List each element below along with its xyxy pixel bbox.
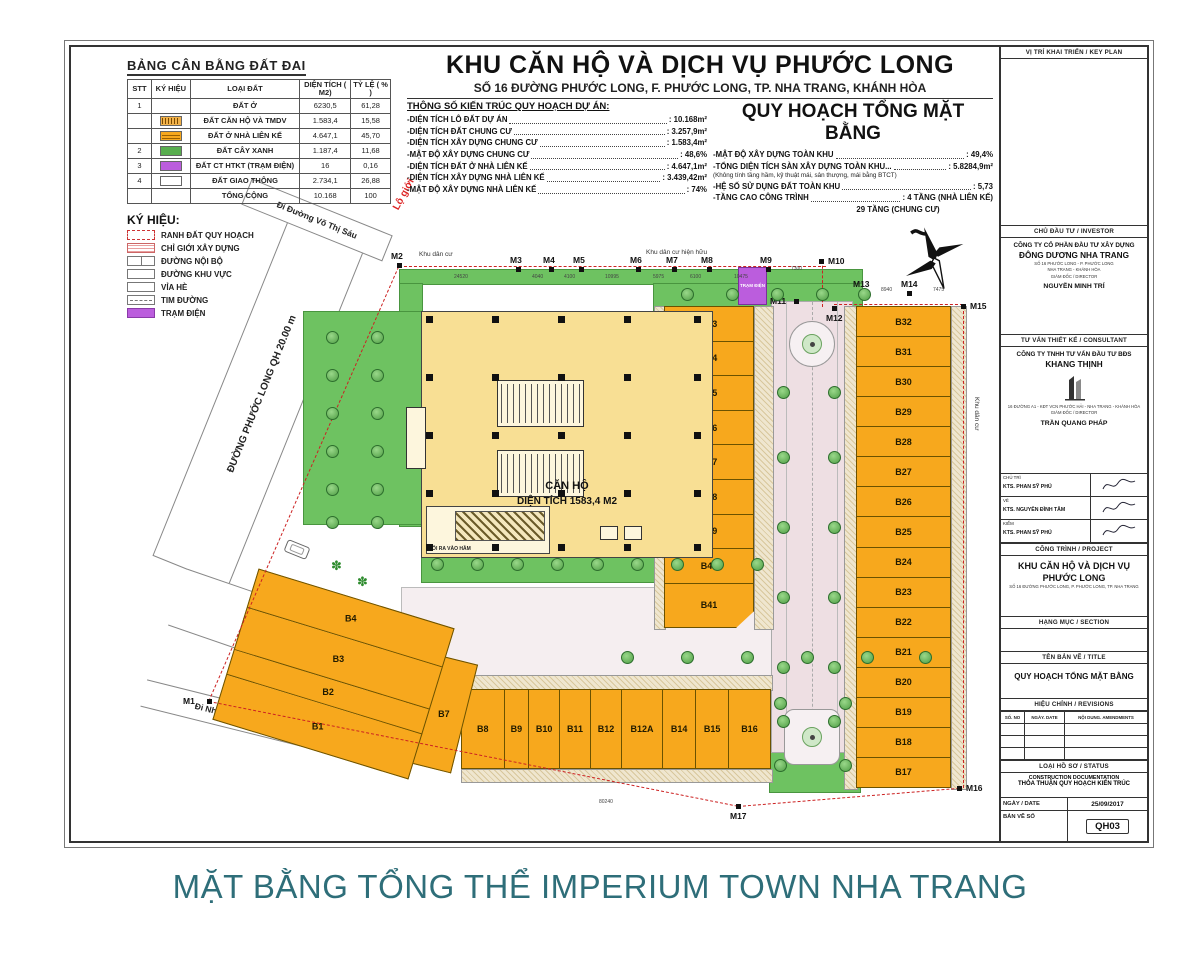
signature-name: KTS. PHAN SỸ PHÚ [1003,530,1088,536]
marker-label-m4: M4 [543,255,555,265]
marker-label-m2: M2 [391,251,403,261]
signature-icon [1099,476,1139,494]
spec-value: : 74% [687,184,707,196]
lot-b22: B22 [856,608,951,638]
column-dot [624,374,631,381]
legend-swatch-khuvuc [127,269,155,279]
boundary-right [963,306,964,788]
legend-item: CHỈ GIỚI XÂY DỰNG [127,243,307,253]
tree-icon [511,558,524,571]
legend-swatch-chigioi [127,243,155,253]
legend-item: ĐƯỜNG NỘI BỘ [127,256,307,266]
tree-icon [774,697,787,710]
dim-top: 5975 [653,274,664,280]
lot-label: B12 [598,724,615,734]
cell-loai: ĐẤT CÂY XANH [190,143,300,158]
tree-icon [371,369,384,382]
cell-tyle: 45,70 [351,128,391,143]
signature-cell [1091,497,1147,519]
marker-dot-m7 [672,267,677,272]
signature-row: KIỂMKTS. PHAN SỸ PHÚ [1001,520,1147,543]
cell-loai: ĐẤT Ở NHÀ LIÊN KẾ [190,128,300,143]
table-header: STT [128,80,152,99]
lot-b24: B24 [856,548,951,578]
column-dot [492,490,499,497]
tree-icon [371,407,384,420]
cell-dientich: 4.647,1 [300,128,351,143]
column-dot [492,544,499,551]
spec-label: -TỔNG DIỆN TÍCH SÀN XÂY DỰNG TOÀN KHU... [713,161,892,173]
rev-header-cell: NGÀY. DATE [1025,711,1065,723]
signature-icon [1099,522,1139,540]
cell-stt [128,113,152,128]
lot-label: B27 [895,467,912,477]
marker-label-m1: M1 [183,696,195,706]
cell-tyle: 61,28 [351,98,391,113]
spec-value: : 4.647,1m² [667,161,707,173]
column-dot [492,432,499,439]
lot-label: B18 [895,737,912,747]
tree-icon [371,516,384,529]
lot-label: B15 [704,724,721,734]
consultant-block: CÔNG TY TNHH TƯ VẤN ĐẦU TƯ BĐS KHANG THỊ… [1001,347,1147,473]
spec-leader [894,169,947,170]
rev-empty-cell [1065,735,1147,747]
tree-icon [621,651,634,664]
dim-top: 4040 [532,274,543,280]
signature-row: VẼKTS. NGUYỄN ĐÌNH TÂM [1001,497,1147,520]
specs-title: THÔNG SỐ KIẾN TRÚC QUY HOẠCH DỰ ÁN: [407,101,707,112]
table-row: 2ĐẤT CÂY XANH1.187,411,68 [128,143,391,158]
column-dot [694,432,701,439]
signature-table: CHỦ TRÌKTS. PHAN SỸ PHÚVẼKTS. NGUYỄN ĐÌN… [1001,473,1147,543]
spec-label: -MẬT ĐỘ XÂY DỰNG NHÀ LIÊN KẾ [407,184,536,196]
lot-b23: B23 [856,578,951,608]
spec-label: -MẬT ĐỘ XÂY DỰNG TOÀN KHU [713,149,834,161]
marker-dot-m17 [736,804,741,809]
tree-icon [371,483,384,496]
signature-row: CHỦ TRÌKTS. PHAN SỸ PHÚ [1001,474,1147,497]
legend-item: TRẠM ĐIỆN [127,308,307,318]
divider [407,98,993,99]
dim-extra: 8940 [881,287,892,293]
green-left-park [303,311,423,525]
keyplan-box [1001,59,1147,225]
lot-label: B29 [895,407,912,417]
cell-swatch [152,98,191,113]
rev-header-cell: SỐ. NO [1001,711,1025,723]
lot-label: B7 [438,709,450,719]
legend-label: TRẠM ĐIỆN [161,309,205,318]
swatch-purple [160,161,182,171]
cell-swatch [152,188,191,203]
lot-b19: B19 [856,698,951,728]
lot-b28: B28 [856,427,951,457]
cell-swatch [152,113,191,128]
spec-cont: 29 TẦNG (CHUNG CƯ) [713,204,993,216]
spec-leader [514,134,665,135]
lot-label: B30 [895,377,912,387]
rev-empty-cell [1001,735,1025,747]
specs-right: QUY HOẠCH TỔNG MẶT BẰNG -MẬT ĐỘ XÂY DỰNG… [707,101,993,216]
spec-leader [531,158,678,159]
lot-b12: B12 [591,689,623,769]
investor-name: ĐÔNG DƯƠNG NHA TRANG [1004,251,1144,262]
signature-cell [1091,474,1147,496]
building-stair-west [406,407,426,469]
marker-dot-m3 [516,267,521,272]
signature-role-cell: VẼKTS. NGUYỄN ĐÌNH TÂM [1001,497,1091,519]
lot-b27: B27 [856,457,951,487]
lot-label: B2 [322,687,334,697]
apartment-building: CĂN HỘ DIỆN TÍCH 1583,4 M2 LỐI RA VÀO HẦ… [421,311,713,558]
median-line [812,302,813,752]
tree-icon [326,483,339,496]
lot-column-right: B32B31B30B29B28B27B26B25B24B23B22B21B20B… [856,306,951,788]
legend-item: ĐƯỜNG KHU VỰC [127,269,307,279]
consultant-logo-icon [1060,373,1088,401]
lot-b10: B10 [529,689,560,769]
number-value: QH03 [1068,811,1147,841]
lot-label: B22 [895,617,912,627]
column-dot [694,544,701,551]
lot-label: B25 [895,527,912,537]
lot-b18: B18 [856,728,951,758]
building-entry-2 [624,526,642,540]
column-dot [426,432,433,439]
star-tree-icon: ✽ [357,575,368,588]
building-name: CĂN HỘ [422,480,712,492]
sidewalk-right-right [951,306,967,790]
land-balance-table: BẢNG CÂN BẰNG ĐẤT ĐAI STTKÝ HIỆULOẠI ĐẤT… [127,57,393,204]
tree-icon [711,558,724,571]
marker-label-m7: M7 [666,255,678,265]
lot-label: B11 [567,724,583,734]
spec-label: -HỆ SỐ SỬ DỤNG ĐẤT TOÀN KHU [713,181,840,193]
status-block: CONSTRUCTION DOCUMENTATION THỎA THUẬN QU… [1001,773,1147,797]
investor-block: CÔNG TY CỔ PHẦN ĐẦU TƯ XÂY DỰNG ĐÔNG DƯƠ… [1001,238,1147,334]
lot-label: B4 [345,613,357,623]
spec-leader [547,181,661,182]
tree-icon [858,288,871,301]
legend-item: RANH ĐẤT QUY HOẠCH [127,230,307,240]
date-value: 25/09/2017 [1068,798,1147,810]
tree-icon [326,369,339,382]
lot-b20: B20 [856,668,951,698]
swatch-road [160,176,182,186]
table-row: 1ĐẤT Ở6230,561,28 [128,98,391,113]
drawing-title: QUY HOẠCH TỔNG MẶT BẰNG [1004,672,1144,681]
dim-top: 6100 [690,274,701,280]
rev-header-cell: NỘI DUNG. AMENDMENTS [1065,711,1147,723]
khu-dan-cu-right-label: Khu dân cư [973,397,980,431]
basement-ramp: LỐI RA VÀO HẦM [426,506,550,554]
signature-role: KIỂM [1003,521,1088,526]
tree-icon [681,288,694,301]
dim-top: 10475 [734,274,748,280]
revisions-table: SỐ. NONGÀY. DATENỘI DUNG. AMENDMENTS [1001,711,1147,760]
tree-icon [777,451,790,464]
table-header: TỶ LỆ ( % ) [351,80,391,99]
lot-b29: B29 [856,397,951,427]
spec-value: : 1.583,4m² [667,137,707,149]
spec-line: -MẬT ĐỘ XÂY DỰNG NHÀ LIÊN KẾ: 74% [407,184,707,196]
spec-label: -DIỆN TÍCH ĐẤT CHUNG CƯ [407,126,512,138]
tree-icon [371,445,384,458]
marker-dot-m2 [397,263,402,268]
drawing-title-box: QUY HOẠCH TỔNG MẶT BẰNG [1001,664,1147,698]
ramp-hatch [455,511,545,541]
plan-title: QUY HOẠCH TỔNG MẶT BẰNG [713,101,993,145]
khu-dan-cu-label: Khu dân cư [419,251,453,258]
legend: KÝ HIỆU: RANH ĐẤT QUY HOẠCHCHỈ GIỚI XÂY … [127,213,307,321]
rev-empty-cell [1001,723,1025,735]
swatch-apartment [160,116,182,126]
marker-label-m15: M15 [970,301,987,311]
star-tree-icon: ✽ [331,559,342,572]
drawing-title-header: TÊN BẢN VẼ / TITLE [1001,651,1147,664]
legend-label: CHỈ GIỚI XÂY DỰNG [161,244,240,253]
rev-empty-cell [1065,747,1147,759]
tree-icon [771,288,784,301]
table-header: KÝ HIỆU [152,80,191,99]
lot-b41: B41 [664,584,754,628]
marker-label-m14: M14 [901,279,918,289]
tree-icon [431,558,444,571]
lot-b12a: B12A [622,689,663,769]
cell-loai: ĐẤT CĂN HỘ VÀ TMDV [190,113,300,128]
project-header: CÔNG TRÌNH / PROJECT [1001,543,1147,556]
lot-label: B10 [536,724,553,734]
consultant-line1: CÔNG TY TNHH TƯ VẤN ĐẦU TƯ BĐS [1004,351,1144,360]
dim-top: 24520 [454,274,468,280]
spec-leader [509,123,666,124]
sheet-header: KHU CĂN HỘ VÀ DỊCH VỤ PHƯỚC LONG SỐ 16 Đ… [407,51,993,216]
marker-dot-m8 [707,267,712,272]
column-dot [694,374,701,381]
cell-swatch [152,128,191,143]
legend-swatch-timduong [127,295,155,305]
marker-label-m6: M6 [630,255,642,265]
tree-icon [777,715,790,728]
cell-dientich: 10.168 [300,188,351,203]
sidewalk-mid-right [754,306,774,630]
marker-label-m12: M12 [826,313,843,323]
tree-icon [816,288,829,301]
legend-label: ĐƯỜNG NỘI BỘ [161,257,223,266]
cell-dientich: 6230,5 [300,98,351,113]
boundary-top [399,266,826,267]
land-table-title: BẢNG CÂN BẰNG ĐẤT ĐAI [127,58,306,76]
tree-icon [828,386,841,399]
road-phuoc-long-label: ĐƯỜNG PHƯỚC LONG QH 20.00 m [225,314,298,475]
lot-label: B21 [895,647,912,657]
roundabout-top [789,321,835,367]
spec-line: -MẬT ĐỘ XÂY DỰNG TOÀN KHU: 49,4% [713,149,993,161]
consultant-header: TƯ VẤN THIẾT KẾ / CONSULTANT [1001,334,1147,347]
tree-icon [919,651,932,664]
cell-stt: 2 [128,143,152,158]
column-dot [492,316,499,323]
lot-label: B19 [895,707,912,717]
tree-icon [777,661,790,674]
rev-empty-cell [1025,747,1065,759]
marker-label-m3: M3 [510,255,522,265]
legend-swatch-tramdien [127,308,155,318]
marker-dot-m15 [961,304,966,309]
dim-top: 4100 [564,274,575,280]
marker-label-m8: M8 [701,255,713,265]
marker-dot-m6 [636,267,641,272]
tree-icon [551,558,564,571]
spec-leader [540,146,665,147]
tree-icon [839,697,852,710]
column-dot [694,316,701,323]
tree-icon [828,661,841,674]
signature-cell [1091,520,1147,542]
consultant-person: TRẦN QUANG PHÁP [1004,420,1144,427]
table-row: 3ĐẤT CT HTKT (TRẠM ĐIỆN)160,16 [128,158,391,173]
lot-label: B20 [895,677,912,687]
column-dot [426,316,433,323]
building-entry [600,526,618,540]
investor-line1: CÔNG TY CỔ PHẦN ĐẦU TƯ XÂY DỰNG [1004,242,1144,251]
marker-dot-m16 [957,786,962,791]
column-dot [558,374,565,381]
spec-line: -MẬT ĐỘ XÂY DỰNG CHUNG CƯ: 48,6% [407,149,707,161]
investor-role: GIÁM ĐỐC / DIRECTOR [1004,274,1144,280]
swatch-none [161,102,181,110]
cell-stt: 1 [128,98,152,113]
column-dot [558,490,565,497]
consultant-name: KHANG THỊNH [1004,360,1144,371]
sheet-frame: ĐƯỜNG PHƯỚC LONG QH 20.00 m Đi Đường Võ … [69,45,1149,843]
spec-label: -MẬT ĐỘ XÂY DỰNG CHUNG CƯ [407,149,529,161]
lot-b14: B14 [663,689,697,769]
marker-dot-m11 [794,299,799,304]
spec-label: -DIỆN TÍCH XÂY DỰNG CHUNG CƯ [407,137,538,149]
tree-icon [828,521,841,534]
spec-line: -TỔNG DIỆN TÍCH SÀN XÂY DỰNG TOÀN KHU...… [713,161,993,173]
spec-leader [538,193,684,194]
marker-dot-m10 [819,259,824,264]
tree-icon [828,715,841,728]
spec-line: -HỆ SỐ SỬ DỤNG ĐẤT TOÀN KHU: 5,73 [713,181,993,193]
tree-icon [777,521,790,534]
tree-icon [471,558,484,571]
marker-label-m17: M17 [730,811,747,821]
number-label: BẢN VẼ SỐ [1001,811,1068,841]
table-row: 4ĐẤT GIAO THÔNG2.734,126,88 [128,173,391,188]
project-name-2: PHƯỚC LONG [1004,572,1144,584]
cell-dientich: 16 [300,158,351,173]
column-dot [426,544,433,551]
lot-row-bottom: B8B9B10B11B12B12AB14B15B16 [461,689,771,769]
cell-loai: ĐẤT Ở [190,98,300,113]
cell-dientich: 1.187,4 [300,143,351,158]
tree-icon [681,651,694,664]
table-row: TỔNG CỘNG10.168100 [128,188,391,203]
column-dot [694,490,701,497]
lot-b9: B9 [505,689,530,769]
marker-dot-m14 [907,291,912,296]
keyplan-header: VỊ TRÍ KHAI TRIỂN / KEY PLAN [1001,47,1147,59]
drawing-sheet: ĐƯỜNG PHƯỚC LONG QH 20.00 m Đi Đường Võ … [64,40,1154,848]
project-name-1: KHU CĂN HỘ VÀ DỊCH VỤ [1004,560,1144,572]
legend-item: VỈA HÈ [127,282,307,292]
status-line-2: THỎA THUẬN QUY HOẠCH KIẾN TRÚC [1001,781,1147,787]
title-block: VỊ TRÍ KHAI TRIỂN / KEY PLAN CHỦ ĐẦU TƯ … [999,47,1147,841]
signature-role-cell: CHỦ TRÌKTS. PHAN SỸ PHÚ [1001,474,1091,496]
tree-icon [371,331,384,344]
specs-left: THÔNG SỐ KIẾN TRÚC QUY HOẠCH DỰ ÁN: -DIỆ… [407,101,707,216]
swatch-none [161,192,181,200]
lot-label: B12A [631,724,654,734]
marker-dot-m9 [766,267,771,272]
tree-icon [774,759,787,772]
dim-top: 7300 [791,266,802,272]
page-caption: MẶT BẰNG TỔNG THỂ IMPERIUM TOWN NHA TRAN… [0,868,1200,906]
column-dot [624,316,631,323]
rev-empty-cell [1025,735,1065,747]
marker-dot-m1 [207,699,212,704]
tree-icon [741,651,754,664]
cell-swatch [152,143,191,158]
spec-line: -DIỆN TÍCH XÂY DỰNG CHUNG CƯ: 1.583,4m² [407,137,707,149]
cell-stt: 3 [128,158,152,173]
marker-label-m16: M16 [966,783,983,793]
spec-value: : 5,73 [973,181,993,193]
tree-icon [777,386,790,399]
spec-line: -DIỆN TÍCH ĐẤT CHUNG CƯ: 3.257,9m² [407,126,707,138]
lot-label: B41 [701,600,718,610]
tree-icon [828,451,841,464]
tree-icon [671,558,684,571]
investor-header: CHỦ ĐẦU TƯ / INVESTOR [1001,225,1147,238]
cell-stt [128,188,152,203]
legend-label: ĐƯỜNG KHU VỰC [161,270,232,279]
tree-icon [861,651,874,664]
project-title: KHU CĂN HỘ VÀ DỊCH VỤ PHƯỚC LONG [407,51,993,80]
cell-tyle: 0,16 [351,158,391,173]
lot-label: B8 [477,724,489,734]
building-core-1 [497,380,584,427]
date-row: NGÀY / DATE 25/09/2017 [1001,797,1147,810]
spec-label: -DIỆN TÍCH ĐẤT Ở NHÀ LIÊN KẾ [407,161,528,173]
spec-leader [530,169,665,170]
column-dot [624,544,631,551]
project-subtitle: SỐ 16 ĐƯỜNG PHƯỚC LONG, F. PHƯỚC LONG, T… [407,81,993,95]
signature-icon [1099,499,1139,517]
marker-dot-m5 [579,267,584,272]
investor-person: NGUYỄN MINH TRÍ [1004,283,1144,290]
spec-note: (Không tính tầng hầm, kỹ thuật mái, sân … [713,172,993,180]
cell-loai: ĐẤT CT HTKT (TRẠM ĐIỆN) [190,158,300,173]
marker-label-m5: M5 [573,255,585,265]
spec-line: -TẦNG CAO CÔNG TRÌNH: 4 TẦNG (NHÀ LIÊN K… [713,192,993,204]
section-header: HẠNG MỤC / SECTION [1001,616,1147,629]
spec-leader [836,158,965,159]
table-header: DIỆN TÍCH ( M2) [300,80,351,99]
number-row: BẢN VẼ SỐ QH03 [1001,810,1147,841]
cell-loai: TỔNG CỘNG [190,188,300,203]
column-dot [558,432,565,439]
spec-value: : 3.439,42m² [662,172,707,184]
boundary-upper-right [834,304,963,305]
status-header: LOẠI HỒ SƠ / STATUS [1001,760,1147,773]
tree-icon [839,759,852,772]
ramp-label: LỐI RA VÀO HẦM [429,546,471,552]
